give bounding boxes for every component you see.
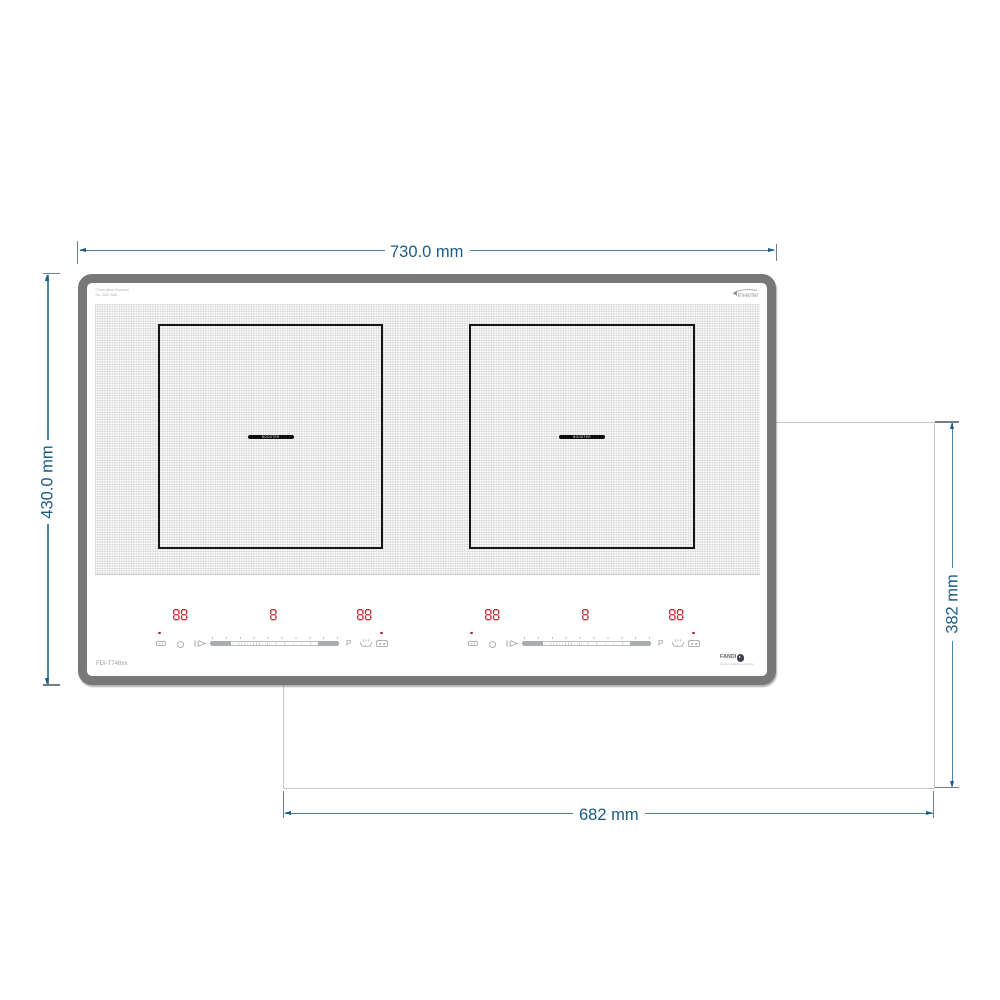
svg-text:Inverter: Inverter xyxy=(738,292,760,299)
